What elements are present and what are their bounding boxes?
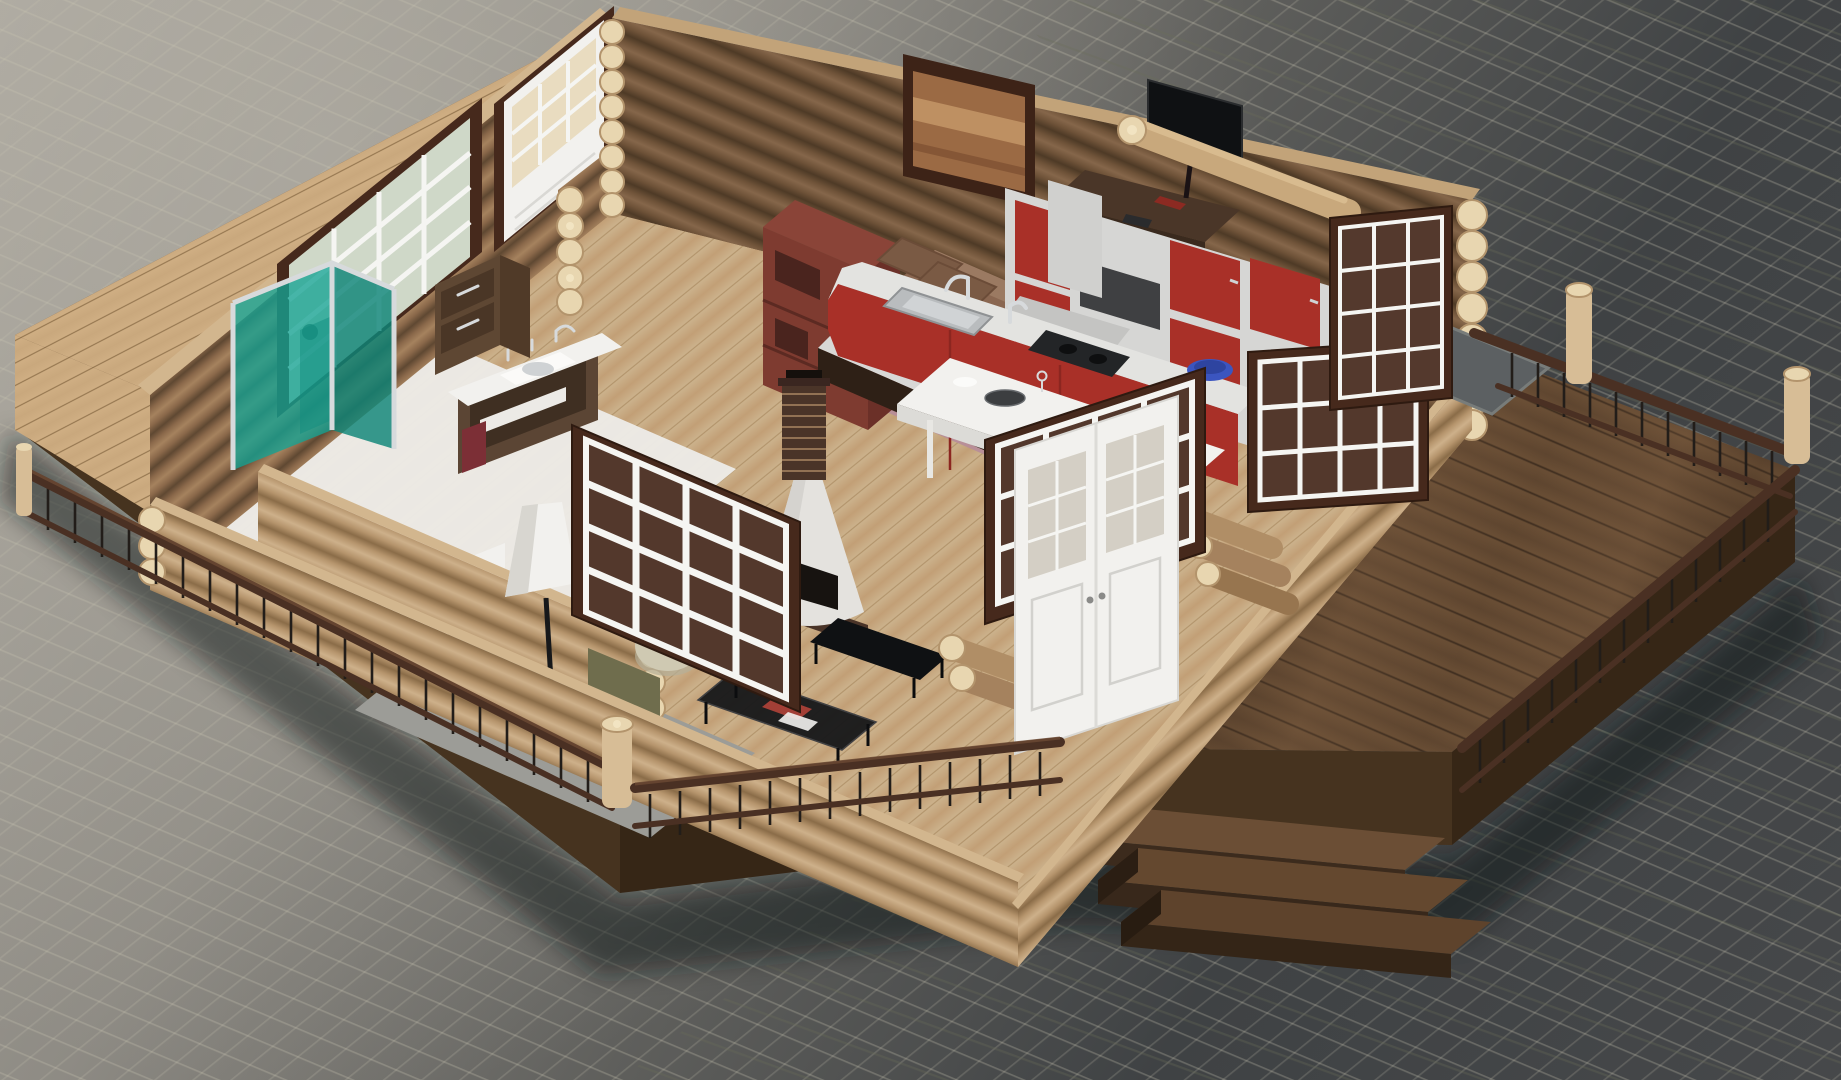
white-double-door [1015, 396, 1178, 754]
right-window-back [1330, 206, 1452, 410]
plate [985, 390, 1025, 406]
cabin-render-image [0, 0, 1841, 1080]
cooker-hood [1048, 180, 1102, 298]
brick-chimney [782, 384, 826, 480]
waste-bin [462, 421, 486, 473]
door-handles [1087, 597, 1094, 604]
scene-canvas [0, 0, 1841, 1080]
corner-post [602, 722, 632, 808]
